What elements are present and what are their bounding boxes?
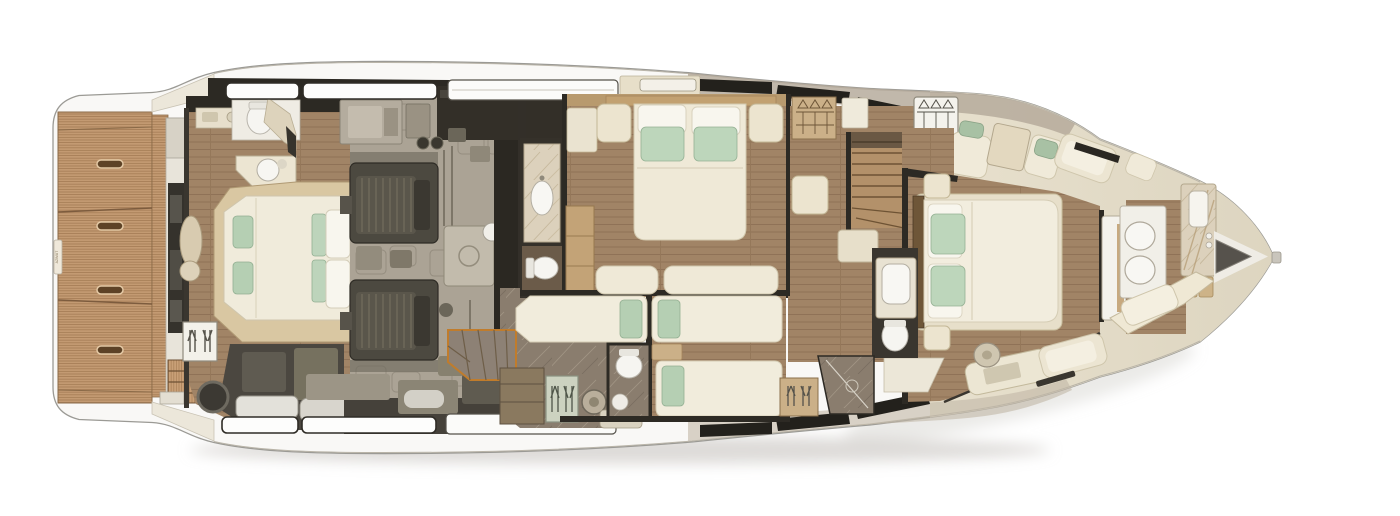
svg-text:AZIMUT: AZIMUT: [55, 251, 59, 264]
